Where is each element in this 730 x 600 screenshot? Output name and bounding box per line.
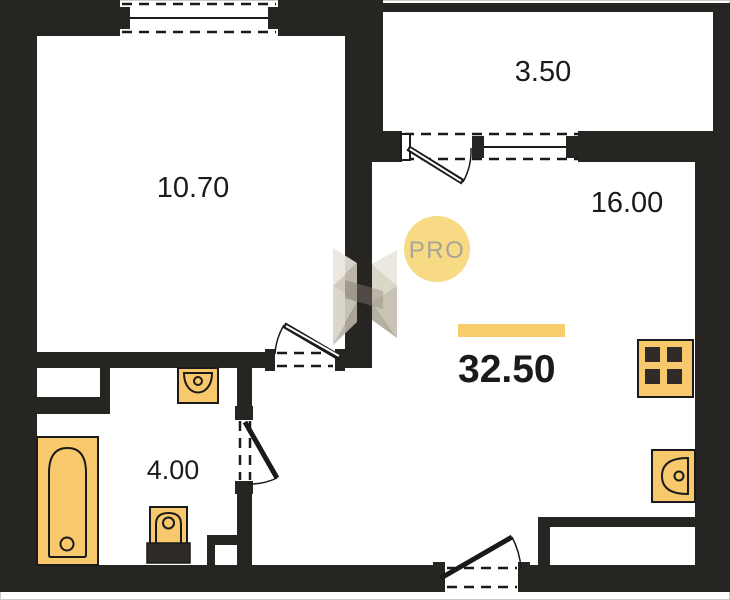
toilet-icon: [147, 507, 190, 563]
window-living: [120, 4, 278, 32]
wall-top-right: [278, 0, 383, 36]
wall-left: [0, 0, 37, 592]
sink-icon: [178, 368, 218, 403]
wall-bottom-left: [0, 565, 433, 592]
door-bathroom: [235, 406, 277, 494]
wall-bathroom-top: [37, 352, 267, 368]
room-label-bathroom: 4.00: [147, 455, 200, 485]
pro-badge-text: PRO: [409, 237, 466, 264]
wall-shaft-bottom: [0, 397, 110, 414]
wall-niche-left: [538, 527, 550, 565]
total-area: 32.50: [458, 324, 565, 391]
wall-balcony-divider-left: [372, 131, 402, 162]
watermark-pro-badge: PRO: [404, 216, 470, 282]
floor-plan-drawing: PRO 10.70 3.50 16.00 4.00 32.50: [0, 0, 730, 600]
wall-center-upper: [345, 36, 383, 131]
room-label-kitchen-living: 16.00: [591, 187, 664, 219]
wall-bathroom-right-upper: [237, 368, 252, 406]
total-area-accent-bar: [458, 324, 565, 337]
wall-balcony-top: [383, 3, 713, 12]
wall-toilet-notch-top: [207, 535, 237, 545]
door-entrance: [433, 537, 530, 592]
room-label-living: 10.70: [157, 172, 230, 204]
wall-niche-top: [538, 517, 697, 527]
room-label-balcony: 3.50: [515, 56, 571, 88]
wall-right: [695, 133, 730, 592]
wall-center-lower: [345, 131, 372, 368]
window-balcony: [404, 134, 578, 159]
stove-icon: [638, 340, 693, 397]
bathtub-icon: [37, 437, 98, 565]
total-area-label: 32.50: [458, 348, 556, 391]
wall-balcony-right: [713, 3, 730, 133]
wall-shaft-right: [100, 368, 110, 397]
kitchen-sink-icon: [652, 450, 695, 502]
floor-plan: PRO 10.70 3.50 16.00 4.00 32.50: [0, 0, 730, 600]
wall-bottom-right: [530, 565, 730, 592]
wall-bathroom-right-lower: [237, 487, 252, 565]
